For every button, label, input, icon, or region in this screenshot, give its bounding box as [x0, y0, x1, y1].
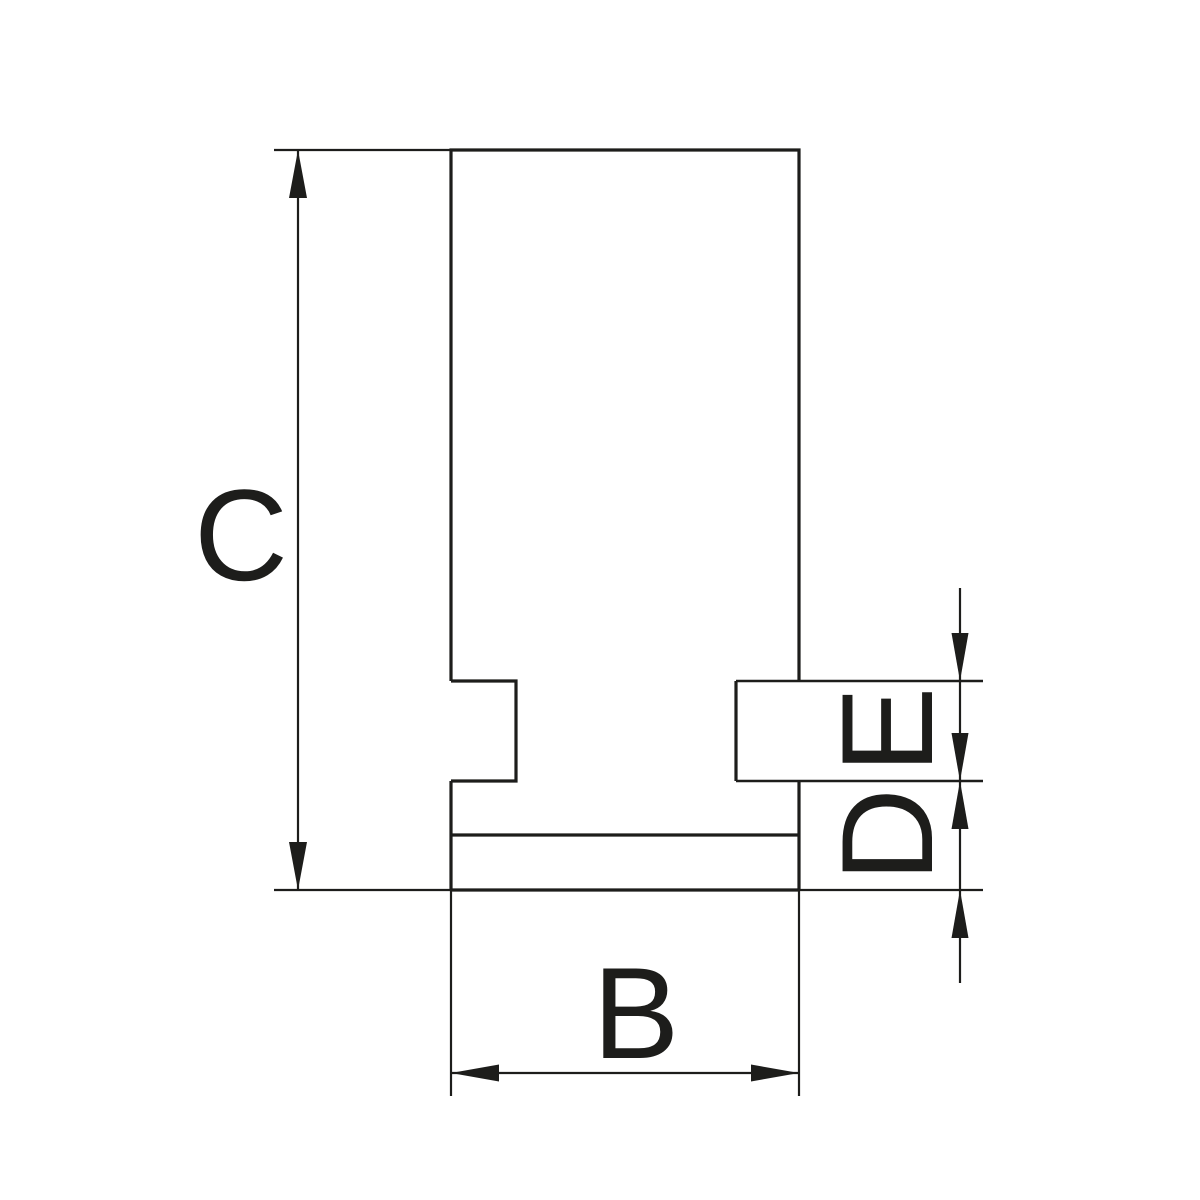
dimension-label-b: B	[593, 940, 680, 1086]
dimension-label-d: D	[814, 788, 960, 882]
part-outline	[451, 150, 799, 890]
arrow-b-left-icon	[451, 1065, 499, 1082]
part-left-groove	[451, 681, 516, 781]
dimension-label-e: E	[814, 687, 960, 774]
part-body-top-and-sides	[451, 150, 799, 681]
arrow-c-up-icon	[289, 150, 307, 198]
technical-drawing-page: C B E D	[0, 0, 1200, 1200]
arrow-c-down-icon	[289, 842, 307, 890]
dimension-labels: C B E D	[194, 462, 960, 1086]
arrow-b-right-icon	[751, 1065, 799, 1082]
dimension-label-c: C	[194, 462, 288, 608]
arrow-e-top-down-icon	[952, 633, 969, 681]
arrow-d-bottom-up-icon	[952, 890, 969, 938]
jaw-cross-section-drawing: C B E D	[0, 0, 1200, 1200]
